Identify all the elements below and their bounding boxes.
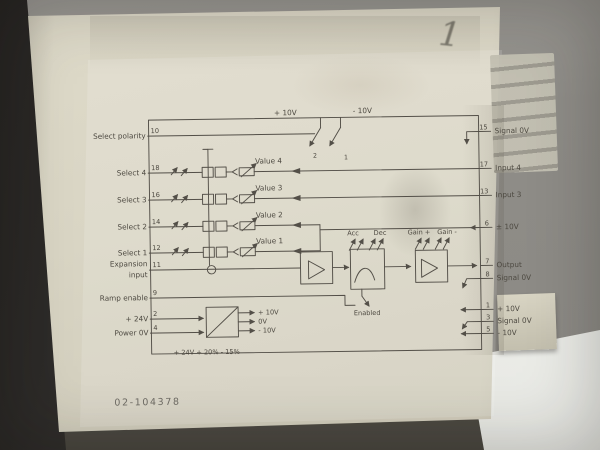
signal-0v-ground [467,131,479,143]
ramp-curve [355,268,375,282]
value-pot-label: Value 2 [256,210,283,219]
left-pin-number: 4 [153,324,157,332]
polarity-switch-arm [330,127,341,145]
wire [150,332,203,333]
left-pin-number: 11 [152,261,161,269]
left-pin-number: 2 [153,310,157,318]
amplifier-block [300,252,332,284]
select-ladder [203,149,215,265]
right-pin-number: 13 [480,187,489,195]
select-row-3 [148,187,479,205]
psu-output-label: + 10V [258,308,279,316]
acc-label: Acc [347,229,359,237]
right-pin-label: Input 3 [495,190,521,199]
gain-triangle [421,259,437,277]
schematic: + 10V - 10V 2 1 Select polarity 10 Selec… [0,0,600,450]
psu-note: + 24V + 20% - 15% [174,348,240,357]
right-pin-number: 5 [486,325,490,333]
left-pin-label: Power 0V [114,328,148,337]
dec-label: Dec [374,229,387,237]
gain-plus-pot [415,238,421,249]
left-pin-number: 10 [151,127,160,135]
right-pin-label: Input 4 [495,163,521,172]
value-pot-label: Value 1 [256,236,283,245]
schematic-text: + 10V - 10V 2 1 Select polarity 10 Selec… [93,104,533,409]
gain-plus-label: Gain + [408,228,431,236]
select-row-4 [148,160,479,178]
psu-diagonal [206,307,238,337]
device-photo: + 10V - 10V 2 1 Select polarity 10 Selec… [0,0,600,450]
signal-0v-ground [462,321,481,328]
right-pin-number: 17 [480,160,489,168]
right-pin-number: 7 [485,257,489,265]
right-pin-number: 3 [486,313,490,321]
right-pin-number: 1 [486,301,490,309]
right-pin-label: ± 10V [496,222,519,231]
value-pot-label: Value 4 [255,156,282,165]
left-pin-label: + 24V [125,314,148,323]
acc-pot [357,239,363,250]
enabled-label: Enabled [354,309,381,317]
part-number: 02-104378 [114,397,180,409]
left-pin-number: 18 [151,164,160,172]
gain-minus-pot [435,238,441,249]
left-pin-label: Select 4 [117,168,147,177]
right-pin-label: Output [496,260,522,269]
left-pin-label: Select 1 [118,248,148,257]
left-pin-number: 16 [151,191,160,199]
acc-pot [349,239,355,250]
left-pin-number: 14 [152,218,161,226]
select-row-1 [149,243,320,258]
wire [150,295,355,308]
left-pin-label: Ramp enable [100,293,149,303]
right-pin-label: Signal 0V [497,273,531,282]
wire [150,318,203,319]
left-pin-number: 9 [153,289,157,297]
right-pin-number: 8 [485,270,489,278]
gain-block [415,250,447,282]
gain-plus-pot [423,238,429,249]
dec-pot [369,239,375,250]
polarity-switch-arm [310,128,321,146]
gain-minus-label: Gain - [437,228,457,236]
wire [148,134,315,136]
left-pin-label: input [129,270,148,279]
right-pin-number: 15 [479,123,488,131]
polarity-switch-num-2: 2 [313,153,317,160]
value-pot-label: Value 3 [255,183,282,192]
psu-output-label: - 10V [258,326,276,334]
right-pin-label: Signal 0V [497,316,531,325]
wire [150,268,301,270]
polarity-switch-num-1: 1 [344,154,348,161]
handwritten-mark: 1 [435,14,487,75]
rail-plus-label: + 10V [274,108,297,117]
rail-minus-label: - 10V [353,106,372,115]
left-pin-label: Expansion [110,259,148,269]
left-pin-label: Select polarity [93,131,146,141]
right-pin-label: Signal 0V [495,126,529,135]
left-pin-label: Select 3 [117,195,147,204]
gain-minus-pot [443,238,449,249]
right-pin-number: 6 [485,219,489,227]
signal-0v-ground [463,278,481,287]
enabled-switch [362,296,369,306]
select-row-2 [149,217,320,232]
left-pin-number: 12 [152,244,161,252]
left-pin-label: Select 2 [117,222,147,231]
psu-output-label: 0V [258,317,267,325]
dec-pot [377,239,383,250]
amplifier-triangle [308,261,324,279]
right-pin-label: - 10V [497,328,516,337]
right-pin-label: + 10V [497,304,520,313]
